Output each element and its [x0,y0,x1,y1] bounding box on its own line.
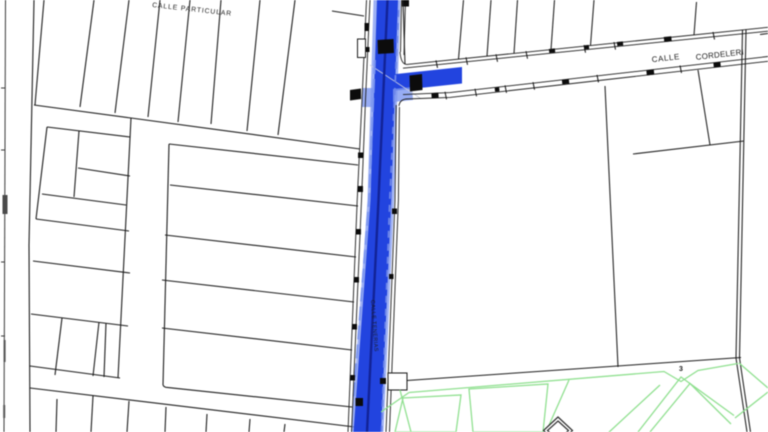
svg-text:3: 3 [679,366,683,373]
